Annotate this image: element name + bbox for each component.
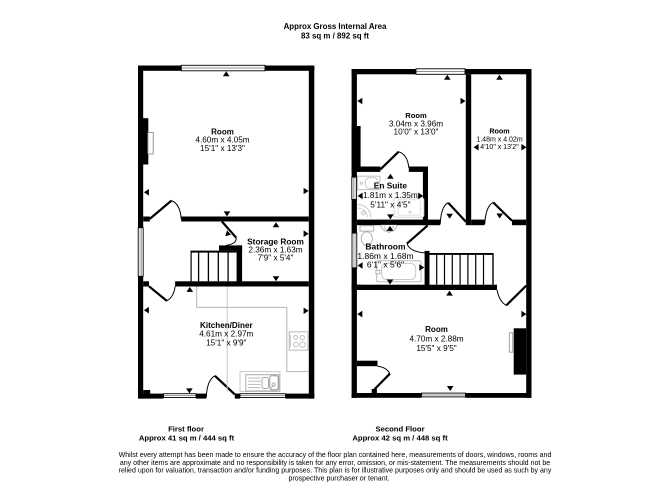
svg-text:15'1" x 13'3": 15'1" x 13'3" [200,144,245,153]
svg-text:any other items are approximat: any other items are approximate and no r… [120,460,550,467]
svg-text:Kitchen/Diner: Kitchen/Diner [200,321,253,330]
svg-text:1.48m x 4.02m: 1.48m x 4.02m [476,136,522,143]
svg-text:Second Floor: Second Floor [375,425,424,434]
svg-text:15'5" x 9'5": 15'5" x 9'5" [416,344,456,353]
svg-text:First floor: First floor [168,425,204,434]
svg-text:7'9" x 5'4": 7'9" x 5'4" [258,254,294,263]
svg-text:Whilst every attempt has been: Whilst every attempt has been made to en… [119,452,552,459]
svg-text:Room: Room [425,325,448,334]
svg-text:Approx Gross Internal Area: Approx Gross Internal Area [284,22,387,31]
svg-text:En Suite: En Suite [374,180,408,190]
svg-text:Approx 42 sq m / 448 sq ft: Approx 42 sq m / 448 sq ft [352,433,448,442]
svg-text:5'11" x 4'5": 5'11" x 4'5" [370,199,410,209]
svg-text:6'1" x 5'6": 6'1" x 5'6" [367,260,404,270]
svg-text:prospective purchaser or tenan: prospective purchaser or tenant. [288,476,389,483]
svg-text:83 sq m / 892 sq ft: 83 sq m / 892 sq ft [301,32,369,41]
svg-text:Bathroom: Bathroom [365,241,406,251]
svg-text:Approx 41 sq m / 444 sq ft: Approx 41 sq m / 444 sq ft [139,433,235,442]
svg-text:4'10" x 13'2": 4'10" x 13'2" [480,144,519,151]
svg-text:4.61m x 2.97m: 4.61m x 2.97m [199,330,253,339]
svg-text:10'0" x 13'0": 10'0" x 13'0" [394,128,439,137]
svg-text:4.70m x 2.88m: 4.70m x 2.88m [409,335,463,344]
svg-text:Room: Room [489,127,509,136]
svg-text:15'1" x 9'9": 15'1" x 9'9" [206,338,246,347]
svg-text:relied upon for valuation, tra: relied upon for valuation, transaction a… [119,468,552,475]
